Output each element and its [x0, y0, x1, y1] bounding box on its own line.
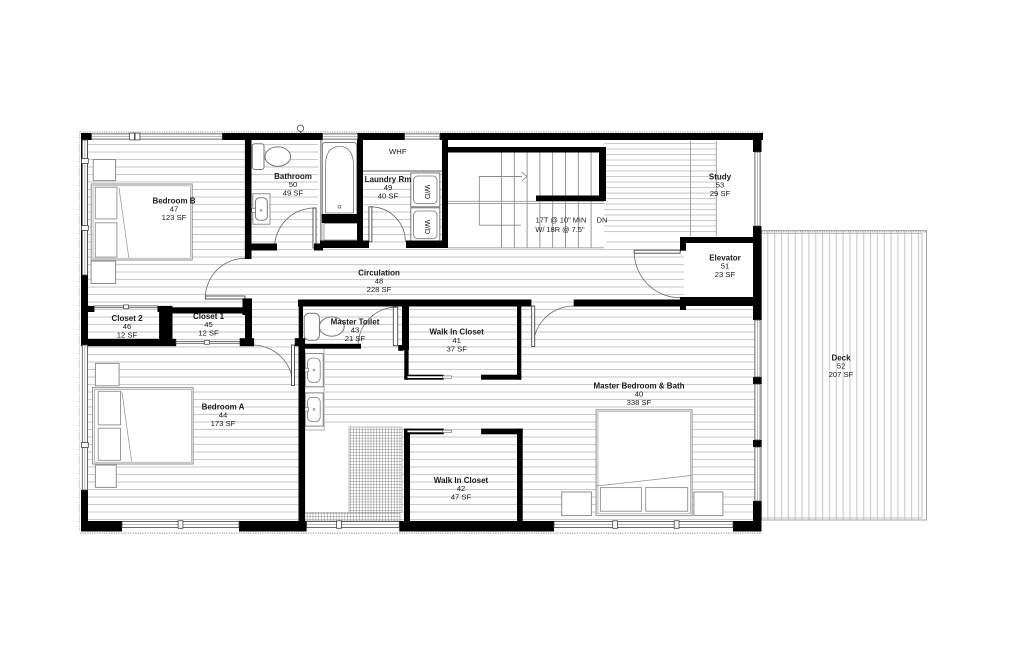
- svg-text:338 SF: 338 SF: [627, 398, 652, 407]
- svg-text:40 SF: 40 SF: [378, 192, 399, 201]
- svg-text:49 SF: 49 SF: [283, 189, 304, 198]
- svg-text:W/D: W/D: [423, 185, 432, 199]
- svg-text:173 SF: 173 SF: [211, 419, 236, 428]
- svg-text:228 SF: 228 SF: [367, 285, 392, 294]
- svg-text:21 SF: 21 SF: [345, 334, 366, 343]
- svg-text:23 SF: 23 SF: [715, 270, 736, 279]
- svg-text:12 SF: 12 SF: [198, 329, 219, 338]
- svg-text:W/D: W/D: [423, 220, 432, 234]
- svg-text:17T @ 10" MIN: 17T @ 10" MIN: [536, 216, 587, 225]
- svg-text:12 SF: 12 SF: [117, 331, 138, 340]
- svg-text:W/ 18R @ 7.5": W/ 18R @ 7.5": [535, 225, 585, 234]
- svg-text:207 SF: 207 SF: [829, 370, 854, 379]
- svg-text:29 SF: 29 SF: [710, 189, 731, 198]
- svg-text:123 SF: 123 SF: [162, 213, 187, 222]
- svg-text:DN: DN: [597, 215, 608, 224]
- svg-text:WHF: WHF: [389, 147, 407, 156]
- svg-text:47 SF: 47 SF: [451, 493, 472, 502]
- svg-text:37 SF: 37 SF: [446, 344, 467, 353]
